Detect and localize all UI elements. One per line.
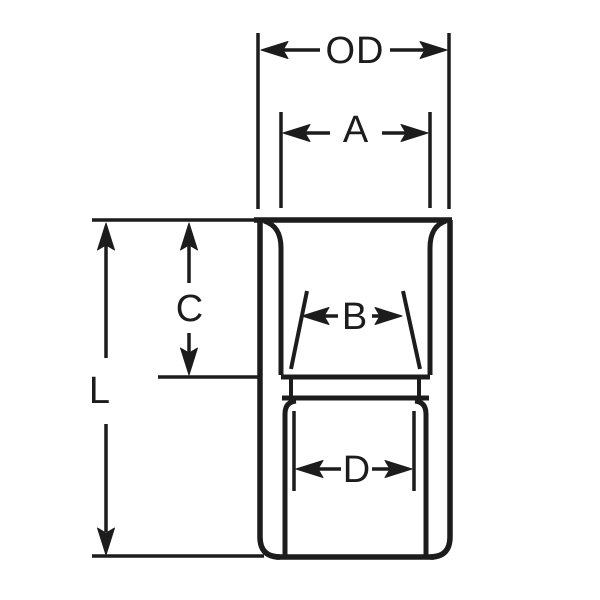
od-label: OD [326, 30, 385, 72]
part-outline [92, 220, 452, 557]
d-label: D [343, 449, 371, 491]
outer-wall-right [430, 220, 450, 557]
l-label: L [89, 370, 111, 412]
c-dimension: C [158, 223, 258, 377]
l-dimension: L [89, 223, 115, 555]
upper-bore-wall-left [264, 221, 281, 375]
taper-line-left [291, 291, 307, 369]
l-arrowhead-down [98, 528, 115, 555]
d-dimension: D [294, 411, 414, 491]
a-dimension: A [281, 109, 430, 208]
upper-bore-wall-right [430, 221, 446, 375]
dimension-diagram: OD A [0, 0, 600, 600]
b-dimension: B [302, 296, 402, 338]
c-label: C [176, 288, 204, 330]
outer-wall-left [260, 220, 280, 557]
coupling-cross-section-drawing: OD A [0, 0, 600, 600]
b-label: B [342, 296, 368, 338]
taper-line-right [403, 291, 420, 369]
lower-bore-wall-right [415, 401, 426, 556]
a-label: A [343, 109, 369, 151]
